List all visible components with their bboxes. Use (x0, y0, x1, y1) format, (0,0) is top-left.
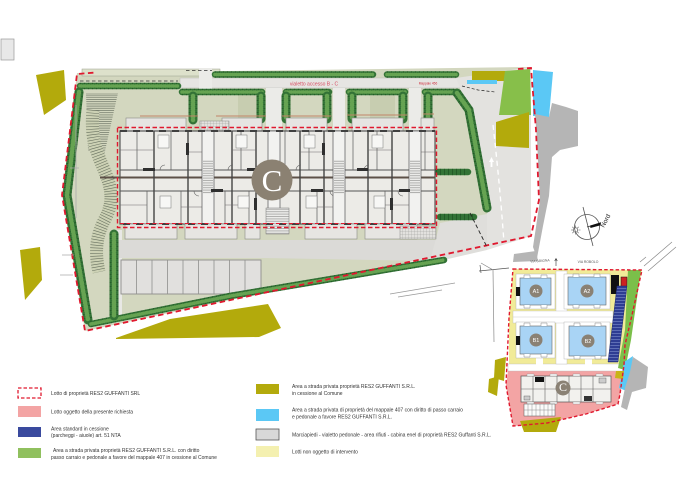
svg-text:Marciapiedi - vialetto pedonal: Marciapiedi - vialetto pedonale - area r… (292, 433, 491, 439)
svg-text:Lotti non oggetto di intervent: Lotti non oggetto di intervento (292, 450, 358, 456)
svg-text:A2: A2 (584, 289, 591, 295)
svg-text:e pedonale a favore RES2 GUFFA: e pedonale a favore RES2 GUFFANTI S.R.L. (292, 415, 392, 421)
svg-text:Area a strada privata di propr: Area a strada privata di proprietà del m… (292, 408, 463, 414)
svg-text:vialetto accesso B - C: vialetto accesso B - C (290, 82, 339, 88)
svg-text:Lotto oggetto della presente r: Lotto oggetto della presente richiesta (51, 410, 133, 416)
svg-text:A1: A1 (533, 289, 540, 295)
svg-text:passo carraio e pedonale a fav: passo carraio e pedonale a favore del ma… (51, 455, 217, 461)
svg-text:C: C (262, 163, 283, 198)
svg-text:C: C (559, 380, 567, 394)
svg-text:Lotto di proprietà RES2 GUFFAN: Lotto di proprietà RES2 GUFFANTI SRL (51, 391, 140, 397)
svg-text:B2: B2 (585, 339, 592, 345)
svg-text:(parcheggi - aiuole) art. 51 N: (parcheggi - aiuole) art. 51 NTA (51, 433, 121, 439)
svg-text:Area a strada privata propriet: Area a strada privata proprietà RES2 GUF… (53, 448, 200, 454)
svg-text:Area standard in cessione: Area standard in cessione (51, 427, 109, 433)
svg-text:B1: B1 (533, 338, 540, 344)
svg-text:Area a strada privata propriet: Area a strada privata proprietà RES2 GUF… (292, 384, 415, 390)
svg-text:Mappale 456: Mappale 456 (419, 82, 438, 86)
svg-text:in cessione al Comune: in cessione al Comune (292, 391, 343, 397)
svg-text:VIA ROBOLO: VIA ROBOLO (578, 260, 599, 264)
